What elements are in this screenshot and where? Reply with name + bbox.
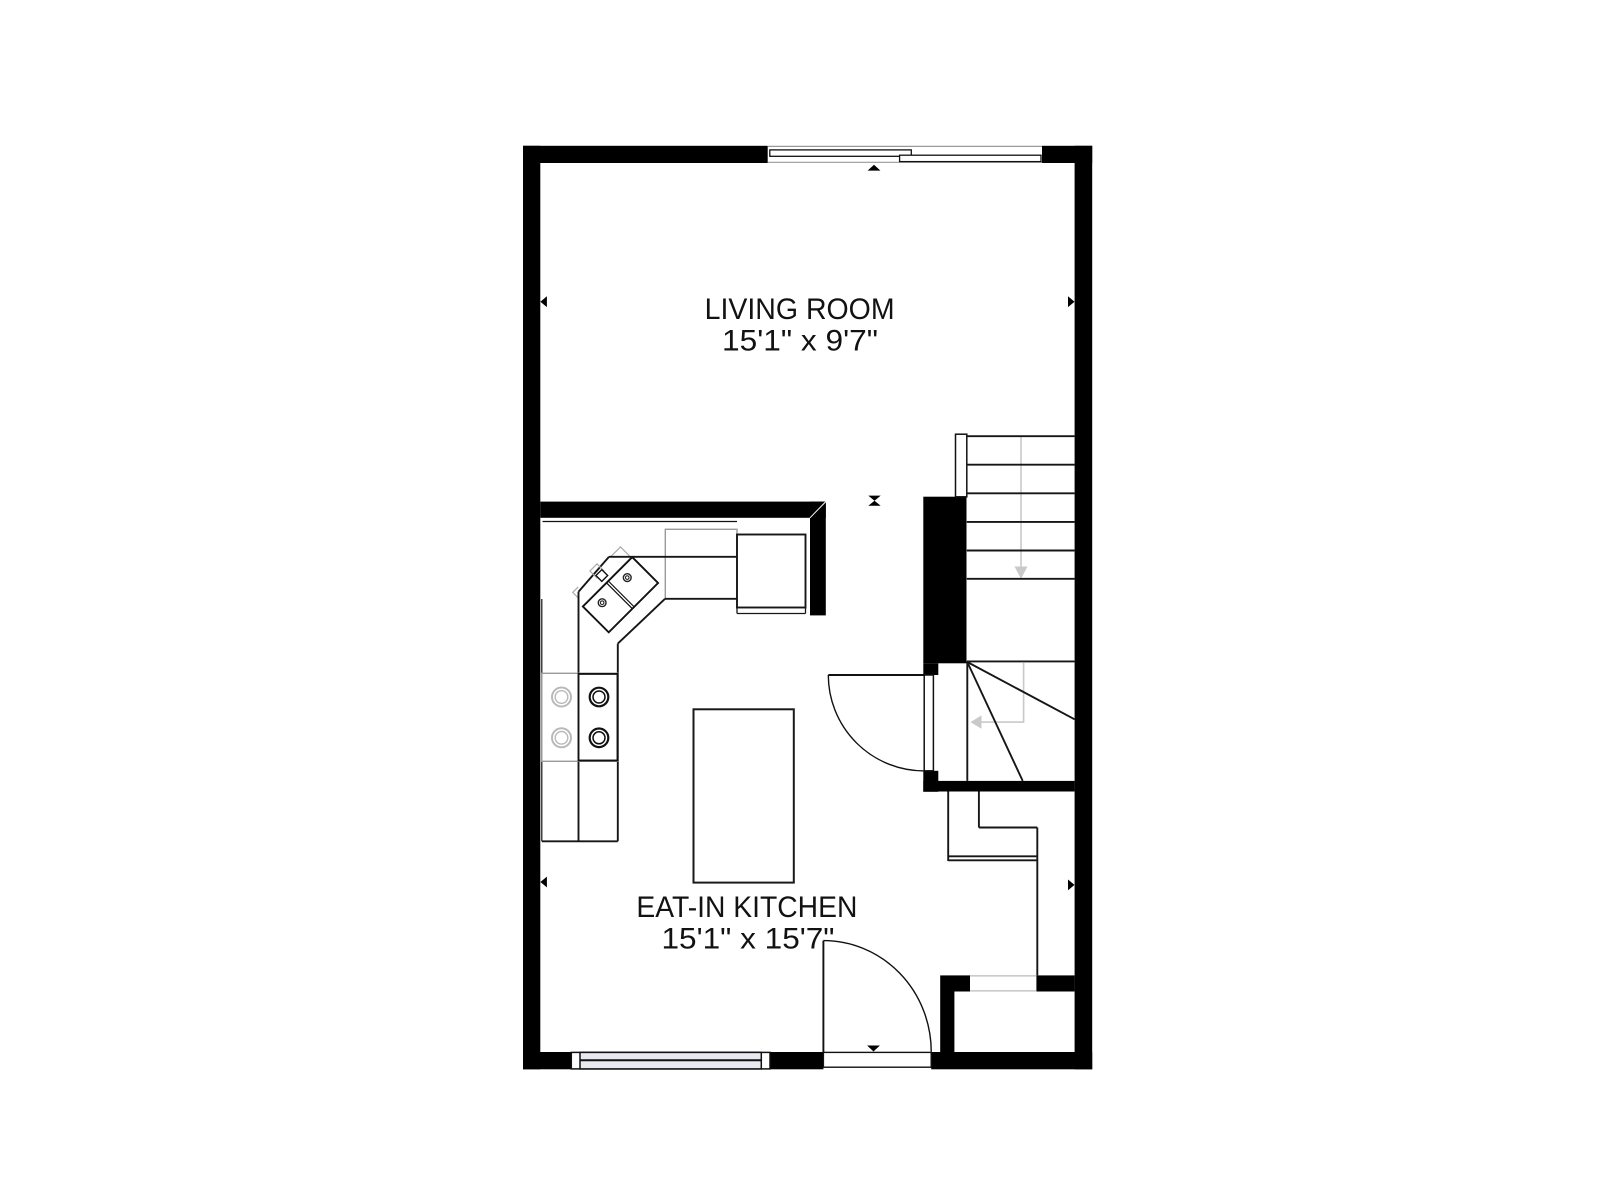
svg-text:LIVING ROOM: LIVING ROOM [705, 293, 895, 326]
svg-text:EAT-IN KITCHEN: EAT-IN KITCHEN [636, 891, 857, 924]
svg-text:15'1" x 9'7": 15'1" x 9'7" [722, 325, 878, 358]
svg-text:15'1" x 15'7": 15'1" x 15'7" [662, 923, 835, 956]
